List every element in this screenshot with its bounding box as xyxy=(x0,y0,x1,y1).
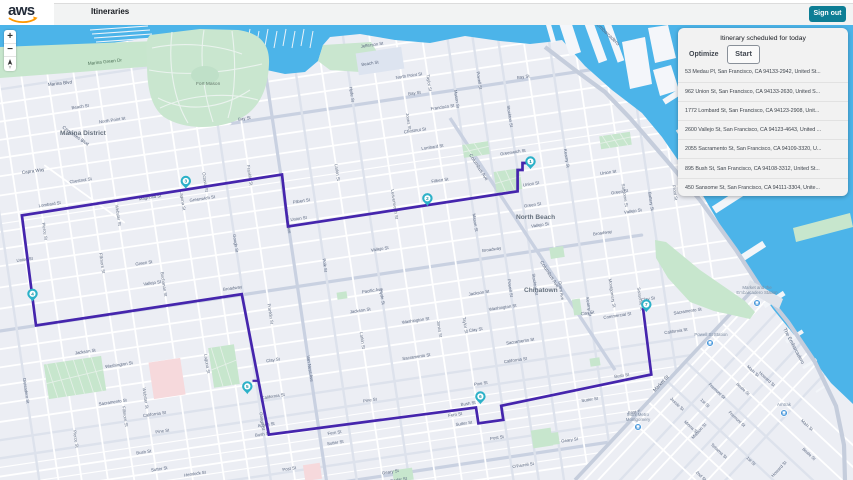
svg-text:7: 7 xyxy=(645,302,648,307)
svg-text:5: 5 xyxy=(246,384,249,389)
svg-text:Montgomery: Montgomery xyxy=(626,417,651,422)
svg-text:Powell St Station: Powell St Station xyxy=(694,332,728,337)
svg-text:3: 3 xyxy=(185,179,188,184)
svg-text:4: 4 xyxy=(31,292,34,297)
svg-text:North Beach: North Beach xyxy=(516,214,555,221)
svg-text:Fort Mason: Fort Mason xyxy=(196,81,221,87)
svg-text:Embarcadero Station: Embarcadero Station xyxy=(736,290,778,295)
svg-text:1: 1 xyxy=(529,159,532,164)
svg-text:Chinatown: Chinatown xyxy=(524,287,558,294)
svg-text:Marina District: Marina District xyxy=(60,130,107,137)
svg-text:Amtrak: Amtrak xyxy=(777,402,792,407)
svg-text:aws: aws xyxy=(8,3,35,19)
svg-text:6: 6 xyxy=(479,394,482,399)
svg-text:2: 2 xyxy=(426,196,429,201)
